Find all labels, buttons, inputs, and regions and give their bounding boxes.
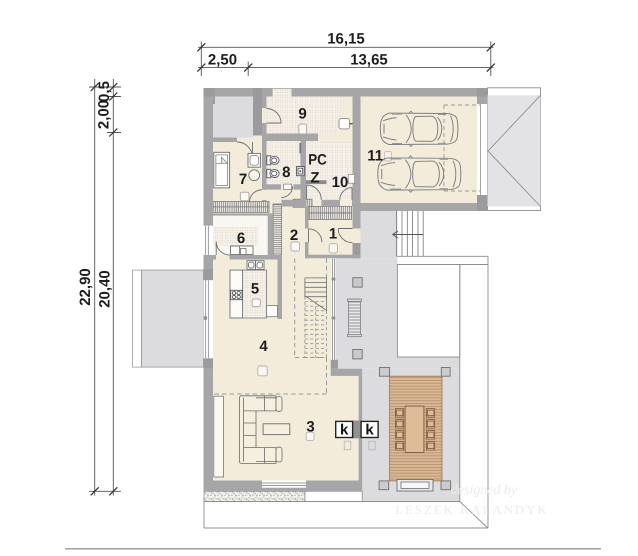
svg-text:k: k (340, 422, 349, 439)
svg-text:20,40: 20,40 (97, 270, 114, 308)
svg-text:6: 6 (237, 230, 245, 247)
svg-text:5: 5 (251, 281, 259, 298)
svg-text:7: 7 (239, 171, 247, 188)
svg-text:2,00: 2,00 (96, 100, 113, 129)
svg-text:0,5: 0,5 (96, 81, 113, 102)
svg-text:1: 1 (329, 226, 337, 243)
svg-text:PC: PC (308, 152, 327, 169)
svg-text:3: 3 (306, 419, 314, 436)
svg-text:22,90: 22,90 (77, 268, 94, 306)
svg-text:10: 10 (332, 174, 349, 191)
svg-text:8: 8 (282, 164, 290, 181)
svg-text:Z: Z (310, 170, 319, 187)
svg-text:11: 11 (367, 148, 383, 165)
svg-text:16,15: 16,15 (327, 31, 365, 48)
svg-text:13,65: 13,65 (350, 51, 388, 68)
svg-text:4: 4 (259, 338, 268, 355)
svg-text:k: k (365, 422, 374, 439)
svg-text:designed by: designed by (451, 483, 518, 498)
svg-text:2: 2 (290, 227, 298, 244)
svg-text:9: 9 (298, 106, 306, 123)
svg-text:LESZEK KALANDYK: LESZEK KALANDYK (395, 503, 548, 517)
svg-text:2,50: 2,50 (208, 51, 237, 68)
